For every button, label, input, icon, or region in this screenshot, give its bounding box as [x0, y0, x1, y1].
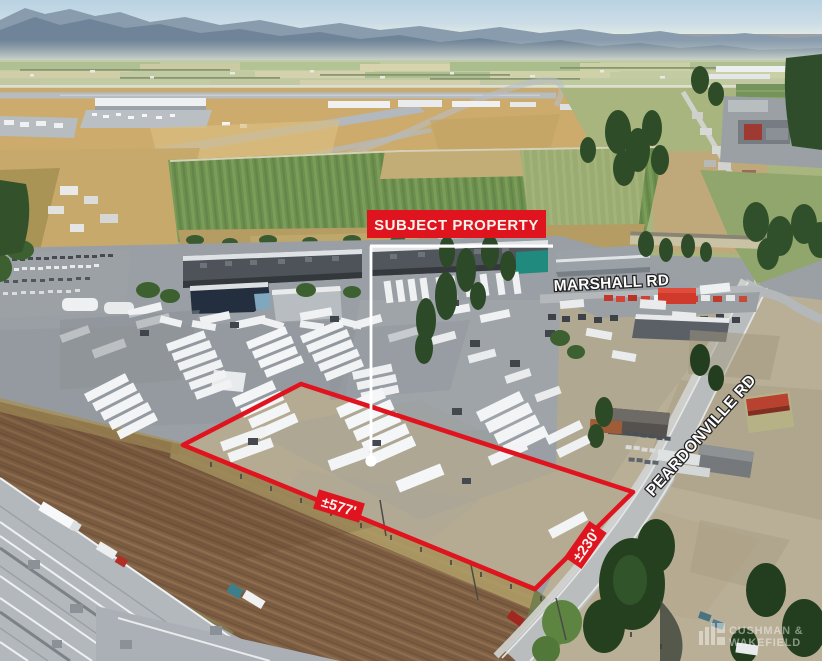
svg-text:WAKEFIELD: WAKEFIELD [729, 637, 801, 649]
svg-text:CUSHMAN &: CUSHMAN & [729, 625, 803, 637]
svg-text:SUBJECT PROPERTY: SUBJECT PROPERTY [374, 217, 539, 234]
